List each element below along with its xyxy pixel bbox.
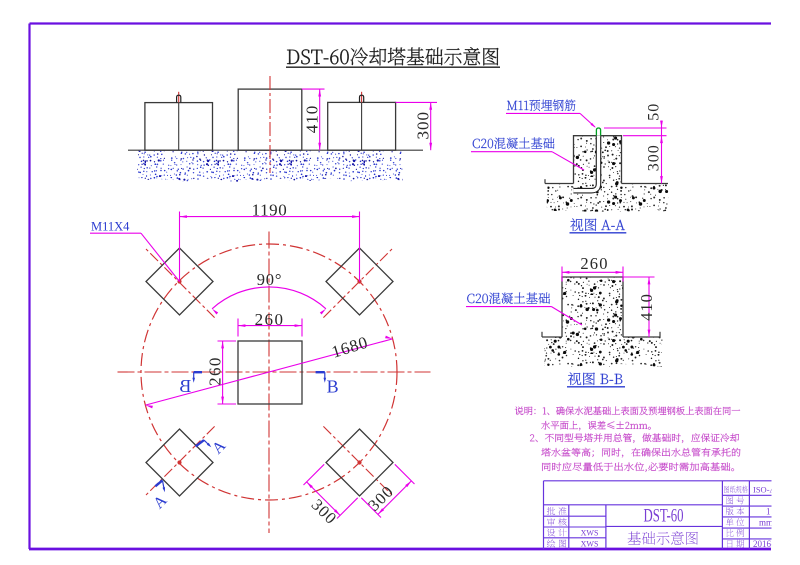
svg-text:mm: mm <box>759 517 773 527</box>
svg-text:260: 260 <box>255 310 285 329</box>
svg-text:410: 410 <box>637 293 656 321</box>
svg-text:300: 300 <box>414 111 433 140</box>
svg-text:1190: 1190 <box>252 200 288 219</box>
svg-text:XWS: XWS <box>581 540 599 549</box>
svg-text:B: B <box>179 376 191 396</box>
svg-text:XWS: XWS <box>581 529 599 538</box>
svg-text:90°: 90° <box>257 270 283 289</box>
svg-text:50: 50 <box>645 103 662 121</box>
svg-text:DST-60: DST-60 <box>644 507 684 527</box>
svg-text:300: 300 <box>645 144 662 171</box>
svg-text:M11X4: M11X4 <box>91 219 130 233</box>
svg-text:410: 410 <box>302 105 321 134</box>
svg-text:1: 1 <box>766 506 771 516</box>
svg-text:B: B <box>327 377 339 397</box>
svg-text:260: 260 <box>205 356 224 386</box>
svg-text:260: 260 <box>580 254 608 273</box>
